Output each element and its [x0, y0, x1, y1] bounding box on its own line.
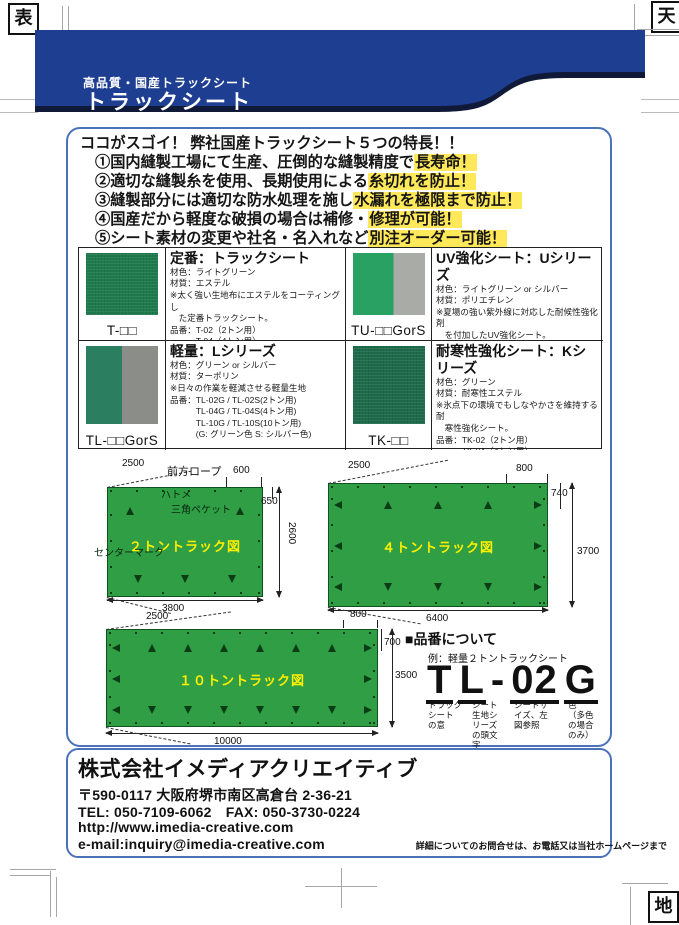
fabric-swatch-image [86, 346, 158, 424]
triangle-marker [228, 575, 236, 583]
triangle-marker [256, 644, 264, 652]
product-code: TL-□□GorS [86, 433, 159, 448]
dimension-label: 650 [261, 497, 278, 507]
triangle-marker [484, 501, 492, 509]
dimension-label: 800 [350, 610, 367, 620]
triangle-marker [434, 583, 442, 591]
trim-mark [56, 877, 57, 917]
dimension-tick [226, 477, 227, 487]
triangle-marker [328, 644, 336, 652]
triangle-marker [236, 507, 244, 515]
center-trim-mark [341, 868, 342, 908]
dimension-label: 3500 [395, 671, 417, 681]
dimension-tick [560, 483, 561, 509]
product-code: T-□□ [107, 323, 137, 338]
triangle-marker [181, 575, 189, 583]
feature-item: ⑤シート素材の変更や社名・名入れなど別注オーダー可能！ [80, 229, 600, 248]
fabric-swatch-image [353, 253, 425, 315]
code-segment-color: G [564, 660, 598, 704]
company-url: http://www.imedia-creative.com [78, 819, 294, 835]
fold-guide [641, 112, 679, 113]
company-name: 株式会社イメディアクリエイティブ [78, 753, 418, 783]
page-title: トラックシート [85, 86, 253, 116]
diagram-title: ４トントラック図 [382, 537, 494, 556]
dimension-label: 10000 [214, 737, 242, 747]
diagram-10ton-sheet: １０トントラック図 [106, 629, 378, 727]
triangle-marker [256, 706, 264, 714]
triangle-marker [334, 501, 342, 509]
center-mark-label: センターマーク [94, 549, 164, 559]
dimension-label: 6400 [426, 614, 448, 624]
contact-note: 詳細についてのお問合せは、お電話又は当社ホームページまで [416, 839, 667, 852]
triangle-marker [148, 706, 156, 714]
dimension-line [106, 733, 378, 734]
dimension-line [279, 487, 280, 597]
triangle-marker [364, 706, 372, 714]
header-banner: 高品質・国産トラックシート トラックシート [35, 30, 645, 120]
trim-mark [10, 869, 56, 870]
trim-mark [10, 875, 50, 876]
dimension-tick [343, 620, 344, 628]
product-swatch-standard: T-□□ [79, 248, 166, 341]
feature-item: ②適切な縫製糸を使用、長期使用による糸切れを防止！ [80, 172, 600, 191]
triangle-marker [434, 501, 442, 509]
product-swatch-light: TL-□□GorS [79, 341, 166, 450]
code-segment-series: T [426, 660, 453, 704]
triangle-marker [534, 501, 542, 509]
product-swatch-uv: TU-□□GorS [346, 248, 432, 341]
triangle-marker [364, 644, 372, 652]
diagram-2ton-sheet: ２トントラック図 [107, 487, 263, 597]
triangle-marker [184, 644, 192, 652]
fold-guide [0, 112, 38, 113]
dimension-line [392, 629, 393, 727]
product-code: TK-□□ [368, 433, 409, 448]
triangle-marker [184, 706, 192, 714]
dimension-tick [547, 474, 548, 483]
diagram-title: １０トントラック図 [179, 670, 305, 689]
dimension-label: 600 [233, 466, 250, 476]
triangle-marker [126, 507, 134, 515]
dimension-label: 2500 [146, 612, 168, 622]
product-code: TU-□□GorS [351, 323, 426, 338]
front-rope-label: 前方ロープ [167, 467, 221, 478]
product-table: T-□□ 定番：トラックシート 材色：ライトグリーン 材質：エステル ※太く強い… [78, 247, 602, 449]
product-info-uv: UV強化シート：Uシリーズ 材色：ライトグリーン or シルバー 材質：ポリエチ… [432, 248, 603, 341]
grommet-label: ハトメ [161, 491, 191, 501]
trim-mark [622, 883, 668, 884]
code-dash: - [491, 660, 505, 700]
triangle-marker [220, 644, 228, 652]
feature-item: ④国産だから軽度な破損の場合は補修・修理が可能！ [80, 210, 600, 229]
triangle-marker [292, 644, 300, 652]
triangle-marker [328, 706, 336, 714]
dimension-line [572, 483, 573, 607]
trim-mark [50, 871, 51, 917]
trim-mark [630, 887, 631, 925]
code-segment-size: 02 [510, 660, 559, 704]
product-info-cold: 耐寒性強化シート：Kシリーズ 材色：グリーン 材質：耐寒性エステル ※氷点下の環… [432, 341, 603, 450]
product-swatch-cold: TK-□□ [346, 341, 432, 450]
fabric-swatch-image [353, 346, 425, 424]
dimension-label: 3700 [577, 547, 599, 557]
dimension-label: 2600 [286, 522, 296, 544]
fold-guide [0, 99, 38, 100]
diagram-4ton-sheet: ４トントラック図 [328, 483, 548, 607]
highlight-text: 長寿命！ [414, 154, 477, 171]
triangle-marker [134, 575, 142, 583]
features-heading: ココがスゴイ！ 弊社国産トラックシート５つの特長！！ [80, 134, 600, 153]
code-segment-fabric: L [458, 660, 485, 704]
highlight-text: 水漏れを極限まで防止！ [353, 192, 522, 209]
triangle-marker [112, 706, 120, 714]
part-number-descriptions: トラック シート の意 シート 生地シ リーズ の頭文 字 シートサ イズ、左 … [428, 700, 612, 750]
triangle-marker [534, 542, 542, 550]
highlight-text: 修理が可能！ [368, 211, 461, 228]
dimension-label: 2500 [122, 459, 144, 469]
triangle-marker [484, 583, 492, 591]
triangle-marker [384, 501, 392, 509]
flyer-page: 表 天 地 高品質・国産トラックシート トラックシート ココがスゴイ！ 弊社国産… [0, 0, 679, 925]
fabric-swatch-image [86, 253, 158, 315]
feature-item: ③縫製部分には適切な防水処理を施し水漏れを極限まで防止！ [80, 191, 600, 210]
triangle-marker [334, 583, 342, 591]
dimension-tick [381, 629, 382, 651]
triangle-marker [292, 706, 300, 714]
fold-guide [641, 99, 679, 100]
company-email: e-mail:inquiry@imedia-creative.com [78, 836, 325, 852]
highlight-text: 別注オーダー可能！ [368, 230, 507, 247]
dimension-tick [377, 620, 378, 628]
dimension-line [107, 600, 263, 601]
dimension-tick [506, 474, 507, 483]
triangle-marker [112, 644, 120, 652]
triangle-marker [220, 706, 228, 714]
dimension-tick [272, 487, 273, 499]
feature-item: ①国内縫製工場にて生産、圧倒的な縫製精度で長寿命！ [80, 153, 600, 172]
triangle-marker [334, 542, 342, 550]
highlight-text: 糸切れを防止！ [368, 173, 476, 190]
part-number-heading: ■品番について [405, 629, 497, 649]
triangle-marker [148, 644, 156, 652]
triangle-pocket-label: 三角ペケット [171, 506, 231, 516]
triangle-marker [112, 675, 120, 683]
triangle-marker [384, 583, 392, 591]
features-list: ココがスゴイ！ 弊社国産トラックシート５つの特長！！ ①国内縫製工場にて生産、圧… [80, 134, 600, 248]
product-info-standard: 定番：トラックシート 材色：ライトグリーン 材質：エステル ※太く強い生地布にエ… [166, 248, 346, 341]
dimension-tick [261, 477, 262, 487]
dimension-label: 800 [516, 464, 533, 474]
dimension-label: 2500 [348, 461, 370, 471]
print-mark-bottom: 地 [648, 891, 679, 923]
triangle-marker [364, 675, 372, 683]
product-info-light: 軽量：Lシリーズ 材色：グリーン or シルバー 材質：ターポリン ※日々の作業… [166, 341, 346, 450]
part-number-code: TL-02G [426, 658, 603, 704]
triangle-marker [534, 583, 542, 591]
